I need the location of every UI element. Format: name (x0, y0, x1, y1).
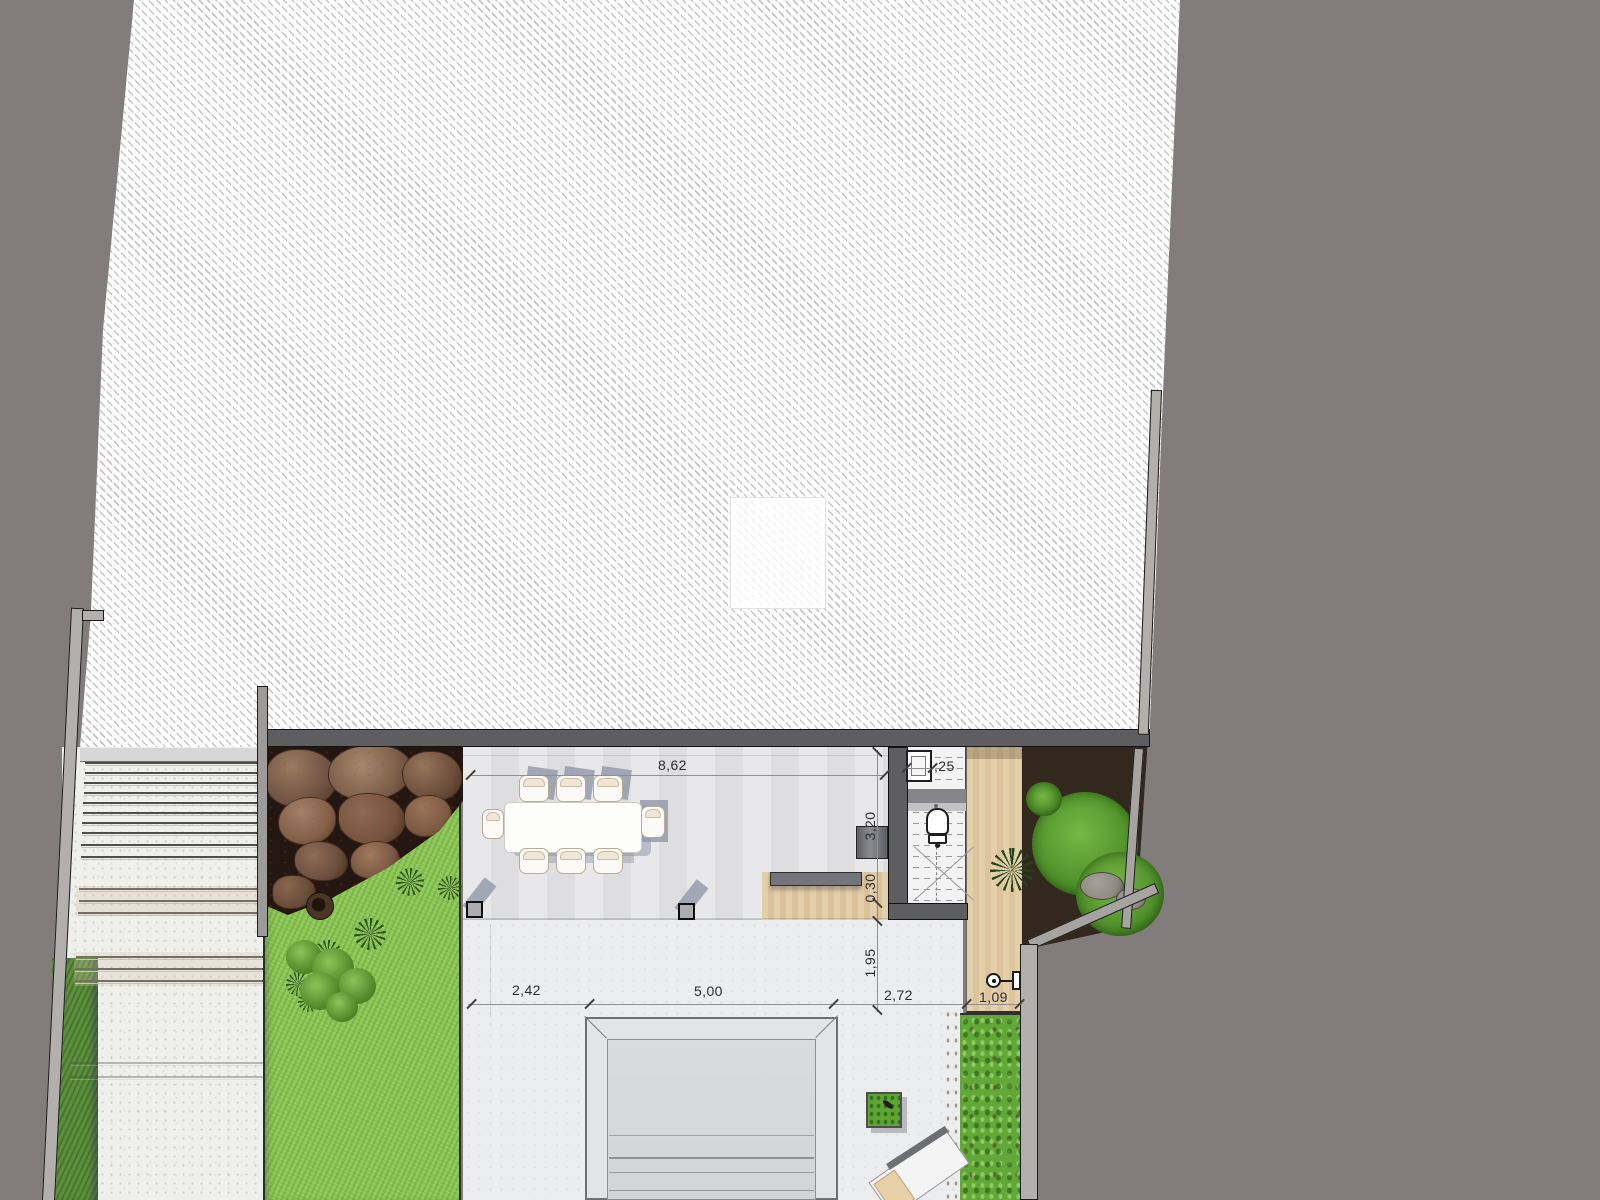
stair-tread-edge (71, 1065, 263, 1066)
dim-label-chain-2: 5,00 (694, 983, 723, 999)
stair-tread (82, 832, 263, 834)
wall-stairwell-left (888, 747, 908, 920)
stair-tread-edge (70, 1079, 263, 1080)
dim-label-chain-3: 2,72 (884, 987, 913, 1003)
stair-tread-edge (82, 835, 263, 836)
stair-tread-edge (81, 859, 263, 860)
stair-tread-edge (75, 971, 263, 972)
dim-label-chain-4: 1,09 (979, 989, 1008, 1005)
stair-tread (83, 802, 263, 804)
chair (641, 806, 665, 838)
toilet-flush-dot (935, 843, 940, 848)
stair-tread (75, 968, 263, 970)
stair-tread (83, 812, 263, 814)
column-marker (678, 903, 695, 920)
stair-tread (76, 956, 263, 958)
stair-tread-edge (84, 785, 263, 786)
stair-tread (82, 822, 263, 824)
stair-tread (84, 782, 263, 784)
stair-tread-edge (85, 775, 263, 776)
dim-line-chain (468, 1004, 1022, 1005)
chair (482, 809, 504, 839)
chair (519, 848, 549, 874)
dim-label-niche: ,25 (934, 758, 955, 774)
stair-tread (71, 1062, 263, 1064)
stair-tread-edge (79, 903, 263, 904)
stair-tread-edge (84, 795, 263, 796)
stair-landing (80, 748, 263, 762)
toilet-icon (926, 808, 949, 835)
stair-tread (70, 1076, 263, 1078)
stair-tread (84, 792, 263, 794)
shower-head (1012, 971, 1021, 990)
kitchen-counter (770, 872, 862, 886)
stair-tread-edge (75, 983, 263, 984)
stair-tread-edge (83, 815, 263, 816)
chair (519, 775, 549, 802)
wall-top (263, 729, 1150, 747)
chair (556, 848, 586, 874)
wall-stairwell-bottom (888, 903, 968, 920)
dining-table (504, 802, 642, 853)
stair-tread-edge (78, 915, 263, 916)
stair-tread-edge (79, 891, 263, 892)
chair (593, 775, 623, 802)
sink-basin (911, 756, 926, 776)
stairwell-step-band (908, 789, 966, 803)
dim-label-stair-depth: 3,20 (862, 808, 878, 844)
dim-label-side-strip: 1,95 (862, 945, 878, 981)
pool-step-line (609, 1190, 814, 1191)
pool-step-line (609, 1172, 814, 1173)
dim-line-niche (906, 768, 932, 769)
stair-tread (75, 980, 263, 982)
dim-label-terrace-width: 8,62 (658, 757, 687, 773)
wall-garden-left (257, 686, 268, 937)
pool-step-line (609, 1157, 814, 1159)
stair-tread-edge (82, 825, 263, 826)
pool-step-line (609, 1135, 814, 1136)
stair-tread (78, 912, 263, 914)
dim-label-chain-1: 2,42 (512, 982, 541, 998)
shower-dot (992, 979, 996, 983)
stair-tread-edge (76, 959, 263, 960)
planter-box (866, 1092, 902, 1128)
stair-tread-edge (83, 805, 263, 806)
stair-tread (85, 772, 263, 774)
stair-tread (79, 900, 263, 902)
column-marker (466, 901, 483, 918)
stair-tread (79, 888, 263, 890)
boundary-wall-bottom-right (1020, 944, 1038, 1200)
stair-tread (81, 844, 263, 846)
dim-label-wall: 0,30 (862, 870, 878, 906)
stair-tread-edge (85, 765, 263, 766)
dim-line-top (470, 775, 884, 776)
wall-cap (82, 610, 104, 621)
site-plan-canvas: SALES VILL (0, 0, 1600, 1200)
stair-tread (85, 762, 263, 764)
chair (556, 775, 586, 802)
chair (593, 848, 623, 874)
stair-tread (81, 856, 263, 858)
stair-tread-edge (81, 847, 263, 848)
pool-basin (607, 1039, 816, 1200)
